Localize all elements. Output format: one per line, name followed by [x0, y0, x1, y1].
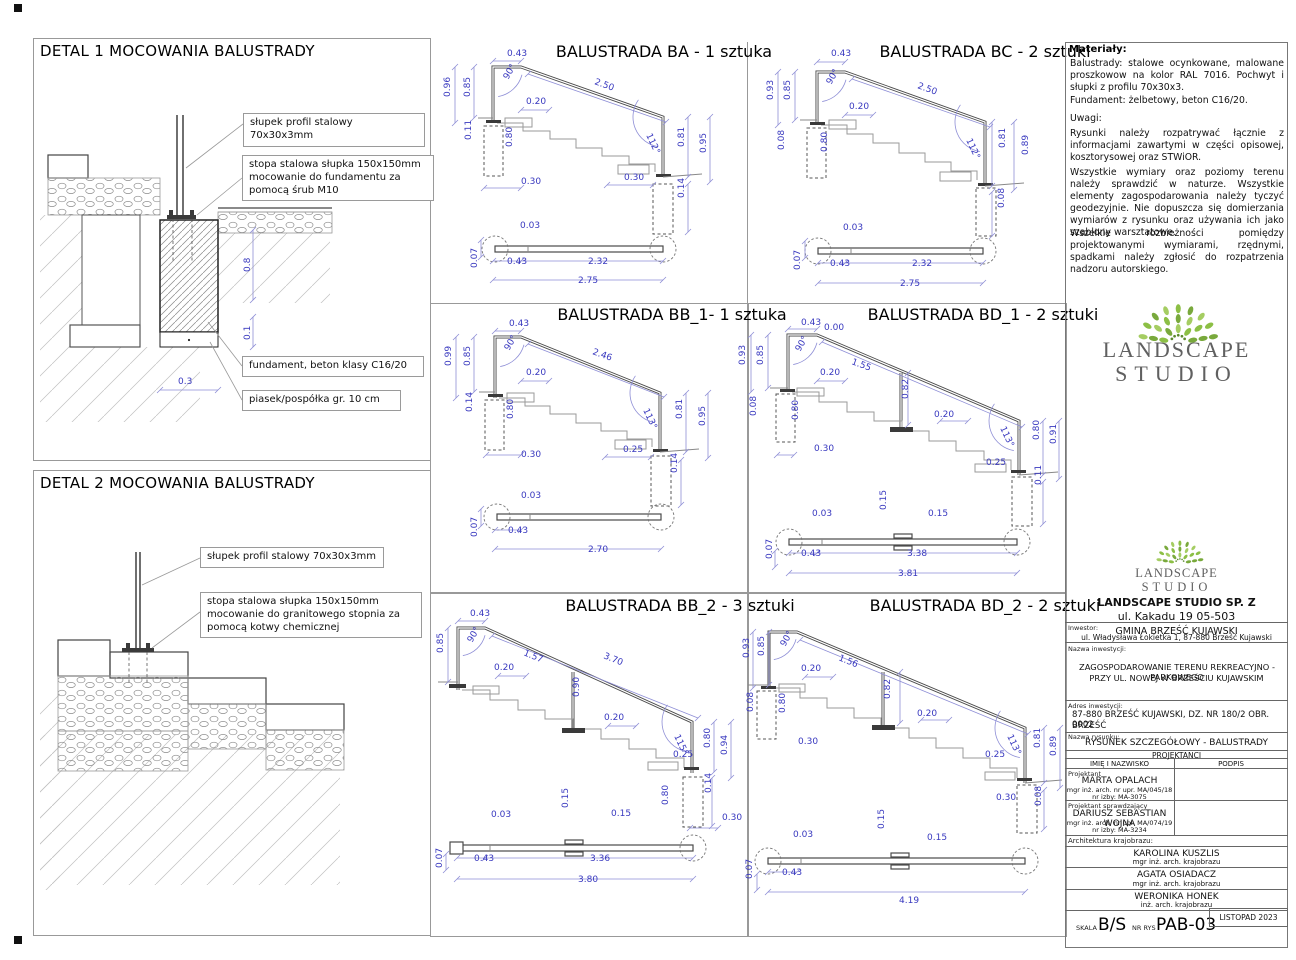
svg-text:0.93: 0.93	[766, 80, 776, 100]
svg-text:0.81: 0.81	[998, 128, 1008, 148]
corner-mark-bottom-left	[14, 936, 22, 944]
svg-text:115°: 115°	[671, 733, 689, 757]
svg-text:0.20: 0.20	[604, 713, 624, 723]
svg-text:90°: 90°	[503, 334, 520, 353]
svg-text:0.82: 0.82	[901, 379, 911, 399]
svg-text:2.50: 2.50	[916, 81, 939, 97]
svg-text:0.14: 0.14	[704, 773, 714, 793]
svg-text:0.90: 0.90	[572, 677, 582, 697]
svg-text:0.85: 0.85	[463, 346, 473, 366]
svg-text:0.93: 0.93	[742, 638, 752, 658]
drawing-sheet: DETAL 1 MOCOWANIA BALUSTRADY DETAL 2 MOC…	[0, 0, 1296, 960]
svg-text:0.20: 0.20	[820, 368, 840, 378]
svg-text:BALUSTRADA BC - 2 sztuki: BALUSTRADA BC - 2 sztuki	[879, 42, 1090, 61]
svg-text:0.15: 0.15	[611, 809, 631, 819]
logo-small-text-landscape: LANDSCAPE	[1065, 566, 1288, 581]
svg-text:0.03: 0.03	[521, 491, 541, 501]
divider-row1	[747, 42, 748, 303]
svg-text:0.30: 0.30	[798, 737, 818, 747]
svg-text:0.80: 0.80	[791, 400, 801, 420]
svg-text:0.25: 0.25	[986, 458, 1006, 468]
svg-text:0.91: 0.91	[1049, 424, 1059, 444]
tb-rysunek: RYSUNEK SZCZEGÓŁOWY - BALUSTRADY	[1065, 738, 1288, 748]
svg-text:0.30: 0.30	[722, 813, 742, 823]
svg-text:0.80: 0.80	[703, 728, 713, 748]
svg-text:BALUSTRADA BD_1 - 2 sztuki: BALUSTRADA BD_1 - 2 sztuki	[868, 305, 1099, 325]
drawing-bc: BALUSTRADA BC - 2 sztuki0.4390°2.500.930…	[766, 42, 1091, 289]
svg-text:0.25: 0.25	[985, 750, 1005, 760]
svg-text:0.07: 0.07	[793, 250, 803, 270]
svg-text:BALUSTRADA BA - 1 sztuka: BALUSTRADA BA - 1 sztuka	[556, 42, 772, 61]
tb-proj-izba: nr izby: MA-3075	[1065, 793, 1174, 801]
tb-line	[1065, 642, 1288, 643]
drawing-bb1: BALUSTRADA BB_1- 1 sztuka0.4390°2.460.99…	[444, 305, 787, 555]
svg-text:0.08: 0.08	[777, 130, 787, 150]
svg-text:0.20: 0.20	[526, 368, 546, 378]
svg-text:0.20: 0.20	[494, 663, 514, 673]
tb-line	[1065, 835, 1288, 836]
svg-text:0.99: 0.99	[444, 346, 454, 366]
materials-u1: Rysunki należy rozpatrywać łącznie z inf…	[1070, 128, 1284, 164]
materials-heading: Materiały:	[1069, 44, 1127, 55]
svg-text:90°: 90°	[794, 335, 811, 354]
corner-mark-top-left	[14, 4, 22, 12]
svg-text:0.95: 0.95	[699, 133, 709, 153]
tb-podpis-header: PODPIS	[1174, 760, 1288, 768]
svg-text:2.46: 2.46	[591, 347, 614, 363]
svg-text:1.57: 1.57	[522, 649, 544, 666]
svg-text:0.11: 0.11	[464, 120, 474, 140]
svg-text:0.30: 0.30	[521, 450, 541, 460]
drawing-bd1: BALUSTRADA BD_1 - 2 sztuki0.430.0090°1.5…	[738, 305, 1098, 579]
svg-text:0.20: 0.20	[849, 102, 869, 112]
svg-text:113°: 113°	[1004, 733, 1022, 757]
tb-adres-l2: BRZEŚĆ	[1072, 721, 1286, 731]
detail2-label-baseplate: stopa stalowa słupka 150x150mm mocowanie…	[200, 592, 422, 638]
detail1-title: DETAL 1 MOCOWANIA BALUSTRADY	[40, 42, 315, 60]
svg-text:0.25: 0.25	[623, 445, 643, 455]
svg-text:1.56: 1.56	[837, 654, 860, 671]
svg-text:113°: 113°	[997, 425, 1015, 449]
svg-text:0.15: 0.15	[879, 490, 889, 510]
logo-text-landscape: LANDSCAPE	[1065, 337, 1288, 363]
svg-text:0.80: 0.80	[505, 127, 515, 147]
tb-nazwa-label: Nazwa inwestycji:	[1068, 645, 1126, 653]
svg-text:BALUSTRADA BB_2 - 3 sztuki: BALUSTRADA BB_2 - 3 sztuki	[565, 596, 794, 616]
svg-text:0.20: 0.20	[934, 410, 954, 420]
company-name: LANDSCAPE STUDIO SP. Z	[1065, 596, 1288, 609]
materials-p2: Fundament: żelbetowy, beton C16/20.	[1070, 95, 1284, 107]
svg-text:112°: 112°	[643, 132, 661, 156]
svg-text:0.30: 0.30	[996, 793, 1016, 803]
svg-text:2.32: 2.32	[912, 259, 932, 269]
svg-text:0.85: 0.85	[757, 636, 767, 656]
tb-projektanci: PROJEKTANCI	[1065, 751, 1288, 760]
tb-line	[1065, 846, 1288, 847]
svg-text:113°: 113°	[640, 407, 658, 431]
tb-line	[1065, 889, 1288, 890]
svg-text:0.89: 0.89	[1021, 135, 1031, 155]
svg-text:2.70: 2.70	[588, 545, 608, 555]
svg-text:0.43: 0.43	[470, 609, 490, 619]
svg-text:BALUSTRADA BB_1- 1 sztuka: BALUSTRADA BB_1- 1 sztuka	[557, 305, 786, 325]
tb-skala-label: SKALA	[1076, 924, 1097, 932]
svg-text:0.43: 0.43	[801, 549, 821, 559]
svg-text:3.81: 3.81	[898, 569, 918, 579]
svg-text:0.96: 0.96	[443, 77, 453, 97]
svg-text:1.55: 1.55	[850, 357, 872, 373]
svg-text:0.43: 0.43	[831, 49, 851, 59]
detail2-label-post: słupek profil stalowy 70x30x3mm	[200, 547, 384, 568]
svg-text:0.89: 0.89	[1049, 736, 1059, 756]
svg-text:0.07: 0.07	[435, 848, 445, 868]
svg-text:0.81: 0.81	[677, 127, 687, 147]
svg-text:112°: 112°	[963, 137, 981, 161]
drawing-ba: BALUSTRADA BA - 1 sztuka0.4390°2.500.960…	[443, 42, 772, 286]
svg-text:2.75: 2.75	[900, 279, 920, 289]
tb-inwestor-addr: ul. Władysława Łokietka 1, 87-880 Brześć…	[1065, 633, 1288, 642]
svg-text:0.43: 0.43	[508, 526, 528, 536]
svg-text:0.30: 0.30	[521, 177, 541, 187]
detail1-dim-height: 0.8	[243, 258, 253, 272]
panel-bd1	[747, 303, 1067, 594]
svg-text:0.43: 0.43	[782, 868, 802, 878]
tb-line	[1065, 867, 1288, 868]
tb-nr-value: PAB-03	[1156, 915, 1216, 935]
svg-text:90°: 90°	[825, 68, 842, 87]
tb-line	[1065, 622, 1288, 623]
tb-adres-label: Adres inwestycji:	[1068, 702, 1123, 710]
svg-text:0.43: 0.43	[509, 319, 529, 329]
tb-k2-name: AGATA OSIADACZ	[1065, 870, 1288, 880]
svg-text:0.03: 0.03	[793, 830, 813, 840]
svg-text:4.19: 4.19	[899, 896, 919, 906]
tb-k1-cred: mgr inż. arch. krajobrazu	[1065, 858, 1288, 866]
svg-text:3.38: 3.38	[907, 549, 927, 559]
svg-text:0.30: 0.30	[624, 173, 644, 183]
svg-text:0.81: 0.81	[675, 399, 685, 419]
svg-text:0.03: 0.03	[491, 810, 511, 820]
tb-line	[1065, 768, 1288, 769]
logo-text-studio: STUDIO	[1065, 361, 1288, 387]
detail1-label-baseplate: stopa stalowa słupka 150x150mm mocowanie…	[242, 155, 434, 201]
svg-text:0.85: 0.85	[436, 633, 446, 653]
svg-text:2.32: 2.32	[588, 257, 608, 267]
materials-p1: Balustrady: stalowe ocynkowane, malowane…	[1070, 58, 1284, 94]
tb-skala-value: B/S	[1098, 915, 1126, 935]
tb-date: LISTOPAD 2023	[1209, 908, 1288, 927]
svg-text:2.50: 2.50	[593, 77, 616, 93]
drawing-bb2: BALUSTRADA BB_2 - 3 sztuki0.4390°1.573.7…	[435, 596, 795, 885]
svg-text:0.93: 0.93	[738, 345, 748, 365]
tb-proj-name: MARTA OPALACH	[1065, 776, 1174, 786]
materials-u3: Wszelkie rozbieżności pomiędzy projektow…	[1070, 228, 1284, 276]
svg-text:0.08: 0.08	[746, 692, 756, 712]
svg-text:0.07: 0.07	[470, 248, 480, 268]
svg-text:0.80: 0.80	[820, 132, 830, 152]
svg-text:0.14: 0.14	[670, 453, 680, 473]
svg-text:0.80: 0.80	[1032, 420, 1042, 440]
svg-text:0.20: 0.20	[917, 709, 937, 719]
svg-text:0.95: 0.95	[698, 406, 708, 426]
svg-text:0.08: 0.08	[997, 188, 1007, 208]
svg-text:0.82: 0.82	[883, 679, 893, 699]
svg-text:0.07: 0.07	[745, 859, 755, 879]
detail1-label-post: słupek profil stalowy 70x30x3mm	[243, 113, 425, 147]
svg-text:0.43: 0.43	[830, 259, 850, 269]
svg-text:2.75: 2.75	[578, 276, 598, 286]
svg-text:3.80: 3.80	[578, 875, 598, 885]
svg-text:0.07: 0.07	[470, 517, 480, 537]
tb-nr-label: NR RYS	[1132, 924, 1156, 932]
detail1-label-sand: piasek/pospółka gr. 10 cm	[242, 390, 401, 411]
svg-text:90°: 90°	[779, 630, 796, 649]
tb-arch-label: Architektura krajobrazu:	[1068, 837, 1153, 845]
tb-spr-izba: nr izby: MA-3234	[1065, 826, 1174, 834]
svg-text:90°: 90°	[502, 63, 519, 82]
svg-text:0.43: 0.43	[507, 49, 527, 59]
svg-text:0.43: 0.43	[801, 318, 821, 328]
svg-text:0.11: 0.11	[1034, 465, 1044, 485]
drawing-bd2: BALUSTRADA BD_2 - 2 sztuki0.930.8590°1.5…	[742, 596, 1100, 906]
svg-text:3.70: 3.70	[602, 652, 625, 669]
svg-text:0.08: 0.08	[1034, 786, 1044, 806]
svg-text:0.94: 0.94	[720, 735, 730, 755]
svg-text:0.07: 0.07	[765, 539, 775, 559]
detail1-dim-width: 0.3	[178, 377, 192, 387]
svg-text:0.85: 0.85	[463, 77, 473, 97]
svg-text:0.20: 0.20	[526, 97, 546, 107]
svg-text:0.03: 0.03	[812, 509, 832, 519]
svg-text:90°: 90°	[466, 626, 483, 645]
tb-line	[1065, 700, 1288, 701]
svg-text:3.36: 3.36	[590, 854, 610, 864]
tb-imie-header: IMIĘ I NAZWISKO	[1065, 760, 1174, 768]
tb-vline-podpis	[1174, 758, 1175, 835]
svg-text:0.25: 0.25	[673, 750, 693, 760]
panel-bd2	[747, 592, 1067, 937]
svg-text:0.85: 0.85	[783, 80, 793, 100]
detail1-dim-sand: 0.1	[243, 326, 253, 340]
panel-bb1	[430, 303, 749, 594]
svg-text:0.15: 0.15	[561, 788, 571, 808]
svg-text:0.80: 0.80	[778, 693, 788, 713]
materials-uwagi: Uwagi:	[1070, 113, 1284, 125]
svg-text:0.14: 0.14	[465, 392, 475, 412]
svg-text:0.43: 0.43	[507, 257, 527, 267]
svg-text:0.85: 0.85	[756, 345, 766, 365]
svg-text:0.81: 0.81	[1033, 728, 1043, 748]
tb-nazwa-l2: PRZY UL. NOWEJ W BRZEŚCIU KUJAWSKIM	[1065, 673, 1288, 683]
svg-text:0.14: 0.14	[677, 178, 687, 198]
svg-text:0.15: 0.15	[928, 509, 948, 519]
svg-text:0.08: 0.08	[749, 396, 759, 416]
svg-text:0.80: 0.80	[661, 785, 671, 805]
svg-text:0.30: 0.30	[814, 444, 834, 454]
svg-text:0.80: 0.80	[506, 399, 516, 419]
logo-small-text-studio: STUDIO	[1065, 580, 1288, 595]
svg-text:0.15: 0.15	[877, 809, 887, 829]
svg-text:0.43: 0.43	[474, 854, 494, 864]
svg-text:0.15: 0.15	[927, 833, 947, 843]
svg-text:0.20: 0.20	[801, 664, 821, 674]
panel-bb2	[430, 592, 749, 937]
detail2-title: DETAL 2 MOCOWANIA BALUSTRADY	[40, 474, 315, 492]
detail1-label-foundation: fundament, beton klasy C16/20	[242, 356, 424, 377]
svg-text:0.03: 0.03	[520, 221, 540, 231]
panel-detail2	[33, 470, 431, 936]
tb-k2-cred: mgr inż. arch. krajobrazu	[1065, 880, 1288, 888]
svg-text:0.00: 0.00	[824, 323, 844, 333]
svg-text:0.03: 0.03	[843, 223, 863, 233]
